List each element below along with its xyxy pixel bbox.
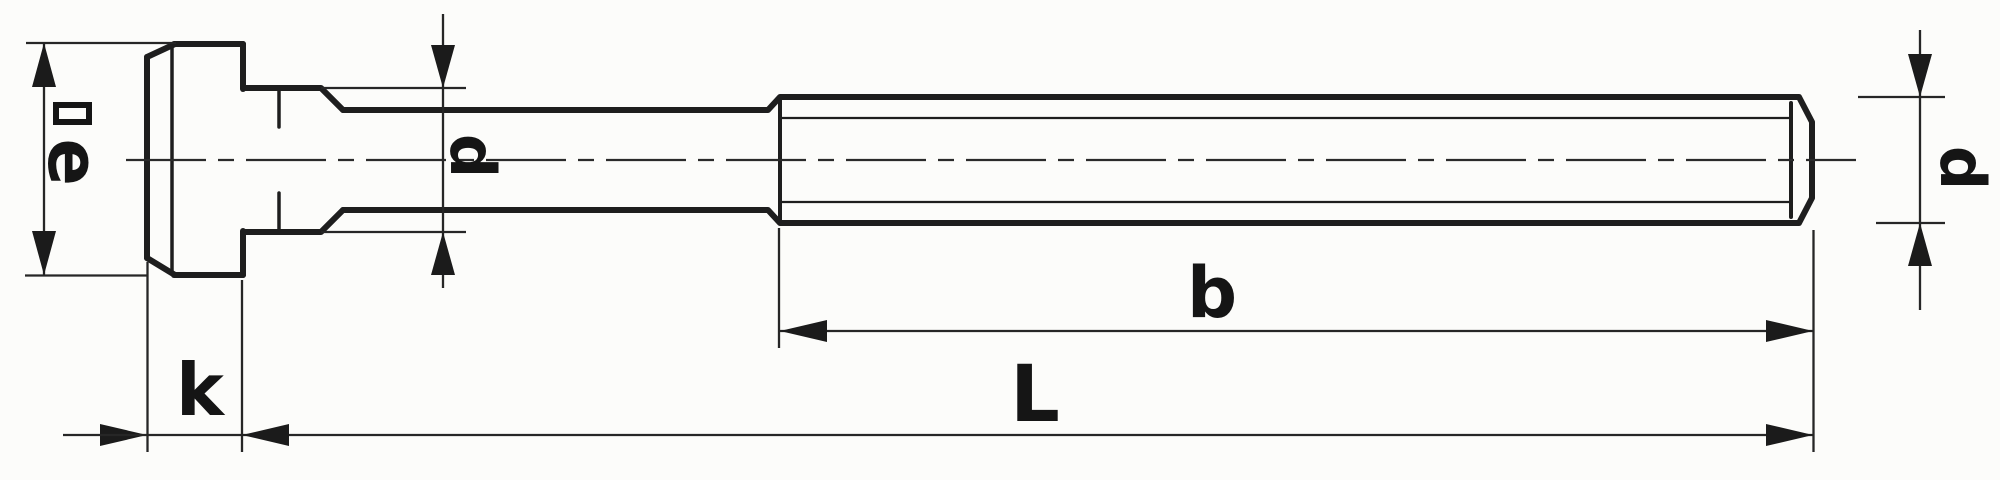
label-total-length: L: [995, 355, 1075, 435]
technical-drawing-page: e d d k b L: [0, 0, 2000, 480]
head-size-letter: e: [38, 139, 108, 186]
arrowhead-up: [32, 43, 56, 87]
arrowhead-up: [1908, 223, 1932, 266]
head-height-letter: k: [176, 354, 224, 426]
arrowhead-right: [1766, 320, 1813, 342]
boss-bottom-edge: [243, 210, 343, 232]
label-head-size: e: [45, 102, 101, 186]
arrowhead-down: [1908, 54, 1932, 97]
dim-thread-length: [779, 228, 1813, 348]
label-thread-length: b: [1172, 253, 1252, 333]
square-section-icon: [54, 102, 93, 125]
label-shank-diameter: d: [442, 134, 502, 178]
shank-diameter-letter: d: [441, 134, 503, 178]
arrowhead-left: [242, 424, 289, 446]
label-head-height: k: [160, 350, 240, 430]
dim-total-length: [63, 230, 1814, 452]
arrowhead-up: [431, 232, 455, 275]
arrowhead-left: [780, 320, 827, 342]
thread-diameter-letter: d: [1931, 146, 1993, 190]
arrowhead-right: [1766, 424, 1813, 446]
arrowhead-down: [32, 231, 56, 275]
label-thread-diameter: d: [1932, 146, 1992, 190]
boss-top-edge: [243, 88, 343, 110]
thread-length-letter: b: [1187, 258, 1237, 328]
arrowhead-down: [431, 45, 455, 88]
total-length-letter: L: [1010, 356, 1060, 434]
